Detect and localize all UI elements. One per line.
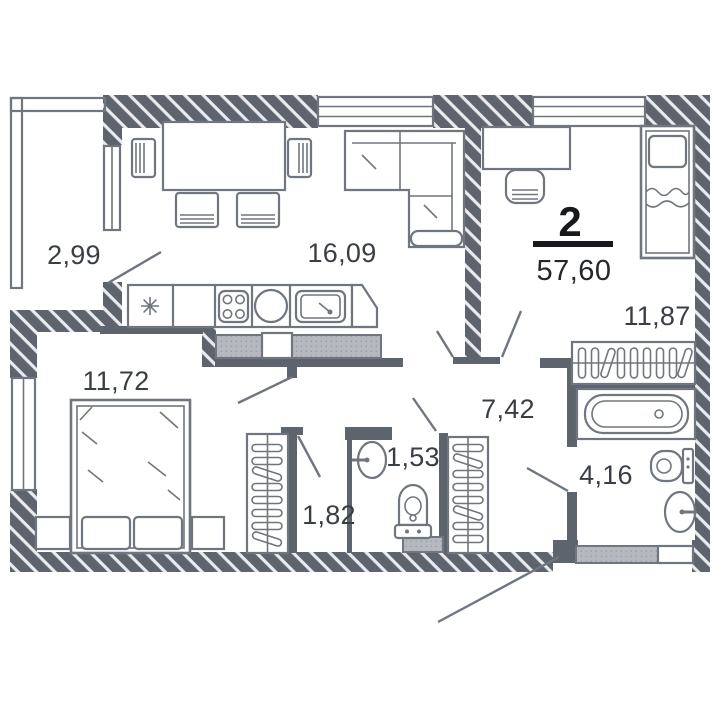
bedroom-2-wardrobe [572, 342, 695, 384]
pillow [134, 517, 182, 549]
chair [176, 193, 218, 227]
double-bed [71, 400, 190, 553]
corner-sofa [345, 131, 464, 247]
apartment-total-area: 57,60 [536, 255, 611, 287]
chair [288, 139, 311, 177]
bathroom-door [527, 468, 568, 491]
bedroom-1-wardrobe [247, 434, 288, 553]
pillow [82, 517, 130, 549]
chair [132, 139, 155, 177]
floor-plan-drawing: 2,99 16,09 11,72 11,87 7,42 1,53 1,82 4,… [0, 0, 720, 720]
apartment-number: 2 [558, 198, 581, 245]
entrance-threshold [576, 546, 658, 563]
window-bedroom-2 [533, 97, 645, 126]
kitchen-counter [128, 285, 377, 327]
chair [237, 193, 279, 227]
balcony-door [108, 252, 161, 283]
fridge-icon [141, 297, 159, 315]
window-bedroom-1 [12, 378, 35, 490]
wc-door [413, 398, 436, 431]
bedroom-2-area-label: 11,87 [623, 301, 690, 331]
desk [483, 127, 570, 203]
bedroom-1-door [238, 377, 292, 403]
bedroom-1-area-label: 11,72 [82, 366, 149, 396]
bathroom-area-label: 4,16 [579, 460, 633, 490]
kitchen-living-area-label: 16,09 [307, 238, 376, 268]
nightstand [36, 517, 70, 549]
nightstand [192, 517, 224, 549]
counter-end [352, 285, 377, 327]
single-bed [641, 126, 694, 258]
apartment-summary: 2 57,60 [533, 198, 613, 287]
bedroom-2-door [502, 311, 521, 357]
bathtub [577, 389, 695, 439]
hallway-area-label: 7,42 [481, 394, 535, 424]
dining-table-set [132, 122, 311, 227]
dining-table [163, 122, 285, 190]
closet-door [298, 436, 320, 477]
living-passage-door [437, 331, 453, 357]
desk-chair [506, 170, 544, 203]
bathroom-sink [665, 492, 697, 532]
balcony-area-label: 2,99 [47, 240, 101, 270]
wc-sink [352, 442, 386, 478]
wc-toilet [395, 485, 431, 538]
window-living [318, 97, 433, 126]
toilet [651, 449, 693, 483]
wc-area-label: 1,53 [386, 442, 440, 472]
floor-plan-page: 2,99 16,09 11,72 11,87 7,42 1,53 1,82 4,… [0, 0, 720, 720]
summary-divider [533, 241, 613, 247]
closet-area-label: 1,82 [302, 500, 356, 530]
window-balcony-wall [104, 146, 120, 230]
hallway-wardrobe [448, 437, 488, 553]
pillow [649, 136, 686, 167]
